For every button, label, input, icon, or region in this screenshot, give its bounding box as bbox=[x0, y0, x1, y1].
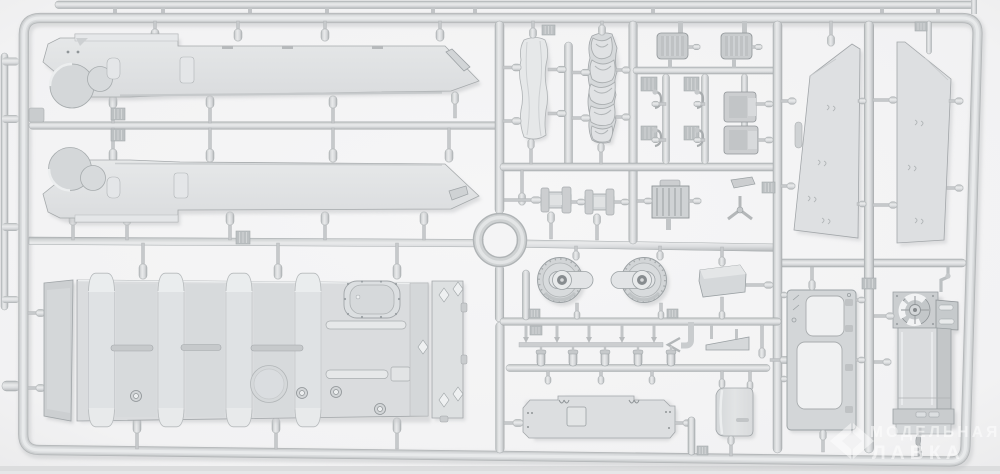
svg-text:ЛАВКА: ЛАВКА bbox=[872, 442, 965, 464]
svg-text:МОДЕЛЬНАЯ: МОДЕЛЬНАЯ bbox=[870, 424, 1000, 441]
